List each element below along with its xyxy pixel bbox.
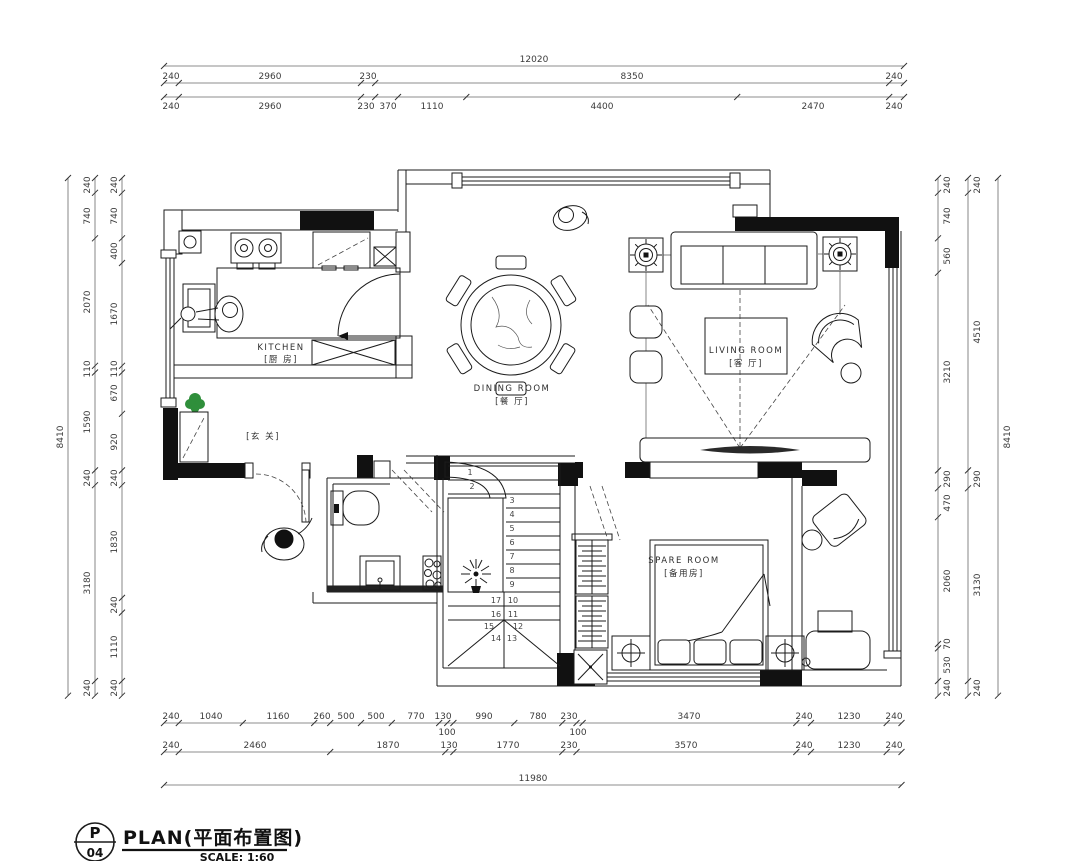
- dim-label: 500: [337, 712, 354, 722]
- wall-hatched-kitchen-bottom: [174, 365, 412, 378]
- dim-label: 230: [560, 741, 577, 751]
- sheet-number: 04: [87, 846, 104, 860]
- dim-label: 1230: [838, 712, 861, 722]
- kitchen-door-swing: [338, 274, 400, 340]
- lamp-icon: [771, 639, 799, 667]
- ceiling-light-icon: [629, 238, 663, 272]
- dim-label: 240: [795, 741, 812, 751]
- dim-label: 240: [162, 102, 179, 112]
- wall-black-top-right: [735, 217, 899, 231]
- dim-label: 1830: [110, 530, 120, 553]
- living-label-en: LIVING ROOM: [709, 346, 783, 356]
- stair-number: 5: [509, 524, 514, 533]
- wardrobe: [572, 534, 612, 684]
- dim-label: 1110: [110, 635, 120, 658]
- dim-label: 1670: [110, 302, 120, 325]
- dim-label: 8410: [56, 425, 66, 448]
- dim-label: 240: [973, 679, 983, 696]
- column-hatched: [733, 205, 757, 217]
- dim-label: 240: [885, 72, 902, 82]
- title-block: P 04 PLAN(平面布置图) SCALE: 1:60: [74, 823, 303, 861]
- kitchen-label-cn: [厨 房]: [264, 354, 298, 365]
- entry-door: [256, 470, 309, 524]
- kitchen-label-en: KITCHEN: [257, 343, 304, 353]
- dim-label: 230: [357, 102, 374, 112]
- floor-plan-drawing: KITCHEN [厨 房] [玄 关]: [0, 0, 1080, 861]
- person-entering: [262, 518, 312, 560]
- dim-label: 780: [529, 712, 546, 722]
- ceiling-light-icon: [823, 237, 857, 271]
- dim-label: 100: [569, 728, 586, 738]
- dim-label: 100: [438, 728, 455, 738]
- sofa: [671, 232, 817, 289]
- dim-label: 290: [943, 470, 953, 487]
- dim-label: 240: [885, 102, 902, 112]
- dim-label: 240: [162, 741, 179, 751]
- dim-label: 240: [110, 679, 120, 696]
- dim-label: 12020: [520, 55, 549, 65]
- sightline-dashes: [648, 290, 845, 448]
- pillow: [730, 640, 762, 664]
- walls: [161, 170, 901, 686]
- dim-label: 2960: [259, 72, 282, 82]
- dim-label: 240: [110, 596, 120, 613]
- foyer-label: [玄 关]: [246, 431, 280, 442]
- pillow: [658, 640, 690, 664]
- dim-label: 370: [379, 102, 396, 112]
- vanity-sink: [360, 556, 400, 590]
- dim-label: 770: [407, 712, 424, 722]
- kitchen-island: [217, 268, 400, 338]
- stair-number: 11: [508, 610, 518, 619]
- dim-label: 920: [110, 433, 120, 450]
- bathroom: [331, 470, 444, 590]
- dim-label: 3180: [83, 571, 93, 594]
- stair-number: 10: [508, 596, 518, 605]
- tv: [700, 446, 800, 454]
- wall-hatched-spare-top: [650, 462, 758, 478]
- dim-label: 240: [110, 469, 120, 486]
- dim-label: 240: [162, 72, 179, 82]
- dim-label: 240: [943, 679, 953, 696]
- dim-label: 240: [885, 712, 902, 722]
- pillow: [694, 640, 726, 664]
- person-dining: [550, 202, 589, 234]
- plant: [185, 393, 205, 413]
- dim-label: 3210: [943, 360, 953, 383]
- wall-black-kitchen-top: [300, 211, 374, 230]
- stair-number: 15: [484, 622, 494, 631]
- lounge-chair-living: [804, 304, 870, 367]
- dim-label: 4400: [591, 102, 614, 112]
- dim-label: 4510: [973, 320, 983, 343]
- dim-label: 3570: [675, 741, 698, 751]
- side-table-round: [802, 530, 822, 550]
- dim-label: 240: [83, 679, 93, 696]
- dim-label: 260: [313, 712, 330, 722]
- floor-drain: [574, 650, 607, 684]
- dim-label: 670: [110, 384, 120, 401]
- dimensions-left: 8410 240 740 2070 110 1590 240 3180 240 …: [56, 175, 125, 699]
- stair-number: 13: [507, 634, 517, 643]
- sheet-letter: P: [90, 824, 101, 842]
- dim-label: 3470: [678, 712, 701, 722]
- stair-number: 9: [509, 580, 514, 589]
- stair-number: 6: [509, 538, 514, 547]
- dim-label: 740: [83, 207, 93, 224]
- dim-label: 240: [110, 176, 120, 193]
- dimensions-bottom: 240 1040 1160 260 500 500 770 130 990 78…: [161, 712, 905, 788]
- spare-label-en: SPARE ROOM: [648, 556, 719, 566]
- dim-label: 400: [110, 242, 120, 259]
- dim-label: 240: [973, 176, 983, 193]
- staircase: 1 2 3 4 5 6 7 8 9 17 10 16 11 15 12 14 1…: [448, 466, 560, 668]
- living-label-cn: [客 厅]: [729, 358, 763, 369]
- wall-black-entry-bottom: [163, 463, 247, 478]
- dim-label: 290: [973, 470, 983, 487]
- drawing-scale: SCALE: 1:60: [200, 851, 275, 861]
- stove: [231, 233, 281, 269]
- stair-number: 3: [509, 496, 514, 505]
- side-table-round: [841, 363, 861, 383]
- stair-number: 17: [491, 596, 501, 605]
- dim-label: 740: [110, 207, 120, 224]
- dim-label: 240: [885, 741, 902, 751]
- bench: [802, 611, 870, 669]
- stair-number: 7: [509, 552, 514, 561]
- dim-label: 2960: [259, 102, 282, 112]
- kitchen-window: [161, 250, 176, 407]
- dining-table: [461, 275, 561, 375]
- dim-label: 1770: [497, 741, 520, 751]
- dim-label: 1110: [421, 102, 444, 112]
- dim-label: 240: [943, 176, 953, 193]
- dining-room: DINING ROOM [餐 厅]: [445, 202, 589, 407]
- dim-label: 2070: [83, 290, 93, 313]
- dim-label: 560: [943, 247, 953, 264]
- stair-number: 4: [509, 510, 514, 519]
- dim-label: 130: [434, 712, 451, 722]
- lamp-icon: [617, 639, 645, 667]
- dining-label-cn: [餐 厅]: [495, 397, 529, 407]
- dim-label: 130: [440, 741, 457, 751]
- stair-storage: [448, 498, 503, 592]
- stair-number: 16: [491, 610, 501, 619]
- dim-label: 240: [83, 176, 93, 193]
- top-window: [452, 173, 740, 188]
- dim-label: 1040: [200, 712, 223, 722]
- dim-label: 740: [943, 207, 953, 224]
- dim-label: 990: [475, 712, 492, 722]
- dim-label: 470: [943, 494, 953, 511]
- dim-label: 240: [83, 469, 93, 486]
- shoe-cabinet: [180, 412, 208, 462]
- dim-label: 110: [83, 360, 93, 377]
- decor-lamp: [461, 559, 491, 593]
- toilet: [331, 491, 379, 525]
- dim-label: 8410: [1003, 425, 1013, 448]
- drawing-title: PLAN(平面布置图): [123, 826, 303, 849]
- dim-label: 70: [943, 638, 953, 650]
- tv-console: [640, 438, 870, 462]
- dim-label: 240: [795, 712, 812, 722]
- living-room: LIVING ROOM [客 厅]: [629, 232, 870, 462]
- dim-label: 230: [359, 72, 376, 82]
- stair-number: 12: [513, 622, 523, 631]
- fridge: [313, 232, 370, 270]
- spare-label-cn: [备用房]: [664, 568, 704, 579]
- stair-number: 8: [509, 566, 514, 575]
- dim-label: 1160: [267, 712, 290, 722]
- dim-label: 240: [162, 712, 179, 722]
- spare-door-dashes: [590, 486, 620, 540]
- dim-label: 500: [367, 712, 384, 722]
- dim-label: 530: [943, 656, 953, 673]
- wall-black-right-corner: [885, 231, 899, 268]
- stair-number: 1: [467, 468, 472, 477]
- spare-bottom-window: [595, 673, 760, 681]
- dim-label: 1870: [377, 741, 400, 751]
- floor-plan-sheet: KITCHEN [厨 房] [玄 关]: [0, 0, 1080, 861]
- dining-label-en: DINING ROOM: [474, 384, 551, 394]
- nightstand-right: [766, 636, 804, 670]
- dim-label: 230: [560, 712, 577, 722]
- dim-label: 2470: [802, 102, 825, 112]
- kitchen: KITCHEN [厨 房]: [170, 232, 400, 365]
- lounge-chair-spare: [810, 492, 868, 549]
- dim-label: 1590: [83, 410, 93, 433]
- spare-room: SPARE ROOM [备用房]: [590, 486, 870, 670]
- dim-label: 110: [110, 360, 120, 377]
- mosaic-strip: [423, 556, 441, 590]
- dimensions-top: 12020 240 2960 230 8350 240 240 2960 230…: [161, 55, 907, 112]
- right-window: [884, 231, 901, 686]
- nightstand-left: [612, 636, 650, 670]
- dimensions-right: 240 740 560 3210 290 470 2060 70 530 240…: [935, 175, 1013, 699]
- dim-label: 2460: [244, 741, 267, 751]
- dim-label: 11980: [519, 774, 548, 784]
- stair-number: 2: [469, 482, 474, 491]
- dim-label: 8350: [621, 72, 644, 82]
- dim-label: 2060: [943, 569, 953, 592]
- stair-number: 14: [491, 634, 501, 643]
- hatch-cabinet: [312, 340, 395, 365]
- dim-label: 1230: [838, 741, 861, 751]
- dim-label: 3130: [973, 573, 983, 596]
